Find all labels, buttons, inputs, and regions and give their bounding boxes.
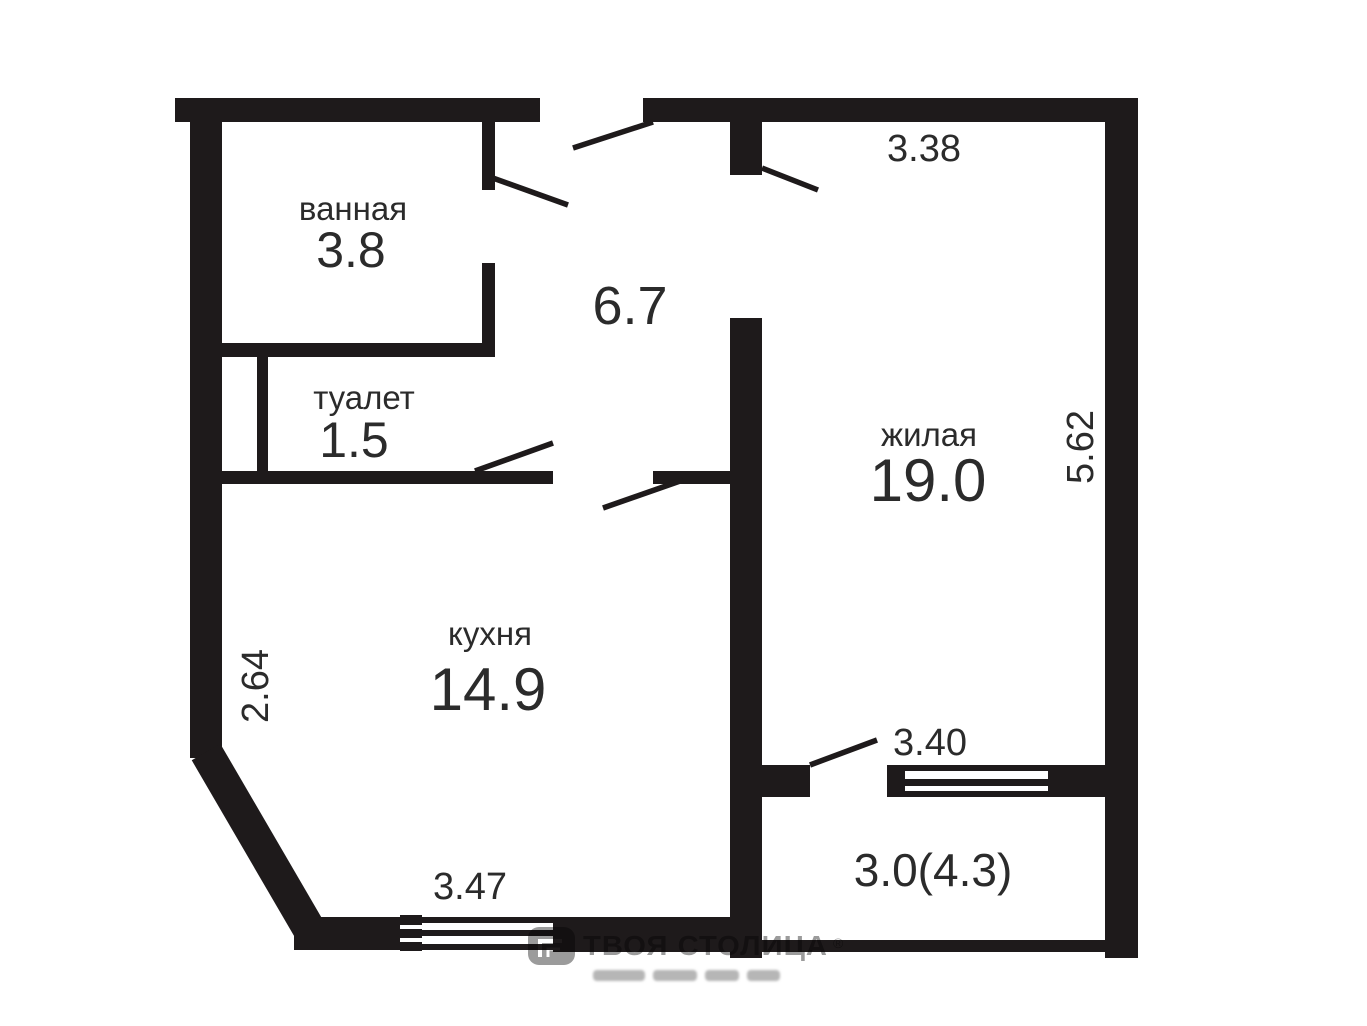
kitchen-area: 14.9 — [430, 656, 547, 723]
kitchen-window-line-top — [400, 917, 553, 923]
wall-diagonal-corner — [206, 752, 312, 934]
toilet-area: 1.5 — [319, 412, 389, 468]
floor-plan-page: ванная 3.8 туалет 1.5 6.7 жилая 19.0 кух… — [0, 0, 1367, 1026]
dim-kitchen-bottom: 3.47 — [433, 866, 507, 908]
wall-toilet-left — [257, 357, 268, 473]
entrance-door-swing — [573, 122, 653, 148]
balcony-window-line-bottom — [905, 791, 1048, 797]
dim-living-right: 5.62 — [1060, 410, 1102, 484]
hallway-area: 6.7 — [592, 276, 667, 336]
wall-living-stub-top — [730, 122, 762, 175]
living-area: 19.0 — [870, 447, 987, 514]
dim-living-top: 3.38 — [887, 128, 961, 170]
bathroom-area: 3.8 — [316, 222, 386, 278]
watermark-tagline-blur — [593, 970, 780, 981]
kitchen-window-tick-2 — [400, 929, 422, 938]
wall-balcony-window-frame-left — [887, 765, 905, 797]
wall-right — [1105, 98, 1138, 958]
kitchen-label: кухня — [448, 615, 532, 652]
watermark-registered-mark: ® — [833, 935, 844, 951]
wall-bathroom-bottom — [222, 343, 495, 357]
balcony-area: 3.0(4.3) — [854, 844, 1013, 896]
wall-living-main — [730, 318, 762, 958]
toilet-label: туалет — [313, 379, 415, 416]
dim-balcony: 3.40 — [893, 722, 967, 764]
wall-top-right — [643, 98, 1138, 122]
balcony-window-line-top — [905, 765, 1048, 771]
kitchen-window-tick-1 — [400, 915, 422, 925]
kitchen-window-tick-3 — [400, 942, 422, 951]
bathroom-door-swing — [490, 177, 568, 205]
kitchen-door-swing — [603, 480, 683, 508]
dim-kitchen-left: 2.64 — [235, 649, 277, 723]
toilet-door-swing — [475, 443, 553, 471]
watermark-brand: ТВОЯ СТОЛИЦА — [583, 930, 828, 961]
wall-bottom-left — [294, 917, 402, 950]
balcony-door-swing — [810, 740, 877, 765]
wall-bathroom-right-lower — [482, 263, 495, 357]
wall-left — [190, 122, 222, 758]
wall-hall-kitchen-a — [222, 471, 553, 484]
wall-balcony-divider — [762, 765, 810, 797]
balcony-window-line-mid — [905, 779, 1048, 786]
floor-plan-svg: ванная 3.8 туалет 1.5 6.7 жилая 19.0 кух… — [0, 0, 1367, 1026]
balcony-window — [905, 765, 1048, 797]
living-door-swing — [762, 168, 818, 190]
watermark-logo-icon — [528, 927, 575, 965]
wall-top-left — [175, 98, 540, 122]
wall-balcony-window-frame-right — [1048, 765, 1105, 797]
